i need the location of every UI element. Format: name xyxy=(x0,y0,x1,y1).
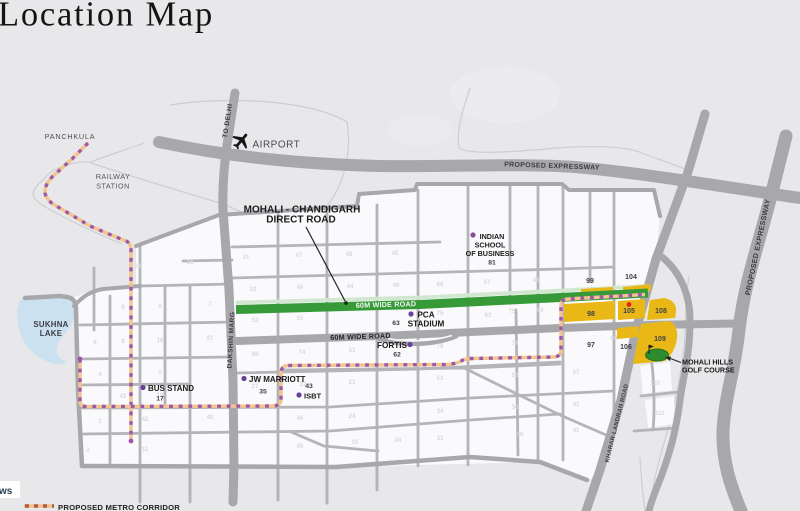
svg-text:42: 42 xyxy=(120,394,127,400)
svg-text:32: 32 xyxy=(250,287,257,293)
svg-text:105: 105 xyxy=(623,308,635,315)
svg-text:79: 79 xyxy=(437,344,444,350)
svg-text:81: 81 xyxy=(488,260,496,267)
svg-text:42: 42 xyxy=(142,417,149,423)
svg-text:49: 49 xyxy=(393,283,400,289)
svg-text:17: 17 xyxy=(156,396,164,403)
svg-text:108: 108 xyxy=(655,308,667,315)
svg-text:36: 36 xyxy=(512,405,519,411)
svg-text:STADIUM: STADIUM xyxy=(408,320,445,329)
svg-text:18: 18 xyxy=(157,338,164,344)
svg-text:57: 57 xyxy=(573,370,580,376)
svg-text:66: 66 xyxy=(437,282,444,288)
svg-text:52: 52 xyxy=(512,373,519,379)
svg-text:31: 31 xyxy=(437,436,444,442)
svg-text:BUS STAND: BUS STAND xyxy=(148,384,194,393)
svg-text:104: 104 xyxy=(625,274,637,281)
svg-text:41: 41 xyxy=(573,402,580,408)
svg-text:27: 27 xyxy=(252,384,259,390)
svg-text:63: 63 xyxy=(485,313,492,319)
svg-text:57: 57 xyxy=(484,280,491,286)
svg-text:46: 46 xyxy=(533,278,540,284)
svg-text:31: 31 xyxy=(243,255,250,261)
svg-text:43: 43 xyxy=(305,383,313,390)
svg-text:Location Map: Location Map xyxy=(0,0,214,34)
svg-text:24: 24 xyxy=(349,414,356,420)
svg-text:FORTIS: FORTIS xyxy=(377,341,408,350)
svg-text:41: 41 xyxy=(573,428,580,434)
svg-text:48: 48 xyxy=(346,252,353,258)
svg-text:111: 111 xyxy=(655,411,665,417)
svg-text:SUKHNA: SUKHNA xyxy=(33,320,68,329)
svg-text:45: 45 xyxy=(392,251,399,257)
svg-text:OF BUSINESS: OF BUSINESS xyxy=(466,249,515,258)
svg-text:75: 75 xyxy=(509,309,516,315)
svg-text:11: 11 xyxy=(142,447,149,453)
svg-text:40: 40 xyxy=(207,415,214,421)
svg-text:30: 30 xyxy=(517,432,524,438)
svg-text:60M WIDE ROAD: 60M WIDE ROAD xyxy=(356,299,417,310)
svg-text:106: 106 xyxy=(620,344,632,351)
svg-text:27: 27 xyxy=(207,336,214,342)
svg-text:DIRECT ROAD: DIRECT ROAD xyxy=(266,215,335,226)
svg-text:STATION: STATION xyxy=(96,182,130,191)
svg-text:55: 55 xyxy=(297,316,304,322)
svg-text:PCA: PCA xyxy=(417,311,434,320)
svg-text:74: 74 xyxy=(299,350,306,356)
svg-text:PROPOSED METRO CORRIDOR: PROPOSED METRO CORRIDOR xyxy=(58,503,180,511)
svg-text:45: 45 xyxy=(297,444,304,450)
svg-text:PANCHKULA: PANCHKULA xyxy=(45,132,96,141)
svg-text:46: 46 xyxy=(297,416,304,422)
svg-text:44: 44 xyxy=(347,284,354,290)
svg-text:15: 15 xyxy=(352,440,359,446)
svg-text:GOLF COURSE: GOLF COURSE xyxy=(682,366,735,375)
svg-text:ISBT: ISBT xyxy=(304,392,322,401)
svg-text:62: 62 xyxy=(393,352,401,359)
svg-text:RAILWAY: RAILWAY xyxy=(96,172,131,181)
svg-text:36: 36 xyxy=(187,260,194,266)
svg-text:47: 47 xyxy=(296,253,303,259)
svg-text:AIRPORT: AIRPORT xyxy=(253,140,301,151)
svg-text:64: 64 xyxy=(537,308,544,314)
svg-text:63: 63 xyxy=(392,320,400,327)
svg-text:75: 75 xyxy=(437,311,444,317)
svg-text:26: 26 xyxy=(135,264,142,270)
svg-text:99: 99 xyxy=(586,278,594,285)
svg-text:34: 34 xyxy=(437,409,444,415)
svg-text:79: 79 xyxy=(512,341,519,347)
svg-text:24: 24 xyxy=(395,438,402,444)
svg-text:ws: ws xyxy=(0,486,13,497)
svg-text:84: 84 xyxy=(611,336,618,342)
svg-text:97: 97 xyxy=(587,342,595,349)
svg-text:110: 110 xyxy=(650,381,660,387)
svg-text:JW MARRIOTT: JW MARRIOTT xyxy=(249,375,306,384)
svg-text:23: 23 xyxy=(349,380,356,386)
svg-text:109: 109 xyxy=(654,336,666,343)
svg-text:53: 53 xyxy=(252,318,259,324)
svg-text:98: 98 xyxy=(587,311,595,318)
svg-text:69: 69 xyxy=(252,352,259,358)
svg-text:35: 35 xyxy=(259,389,267,396)
svg-text:LAKE: LAKE xyxy=(40,329,62,338)
svg-text:51: 51 xyxy=(349,348,356,354)
svg-text:46: 46 xyxy=(297,285,304,291)
svg-text:53: 53 xyxy=(437,376,444,382)
